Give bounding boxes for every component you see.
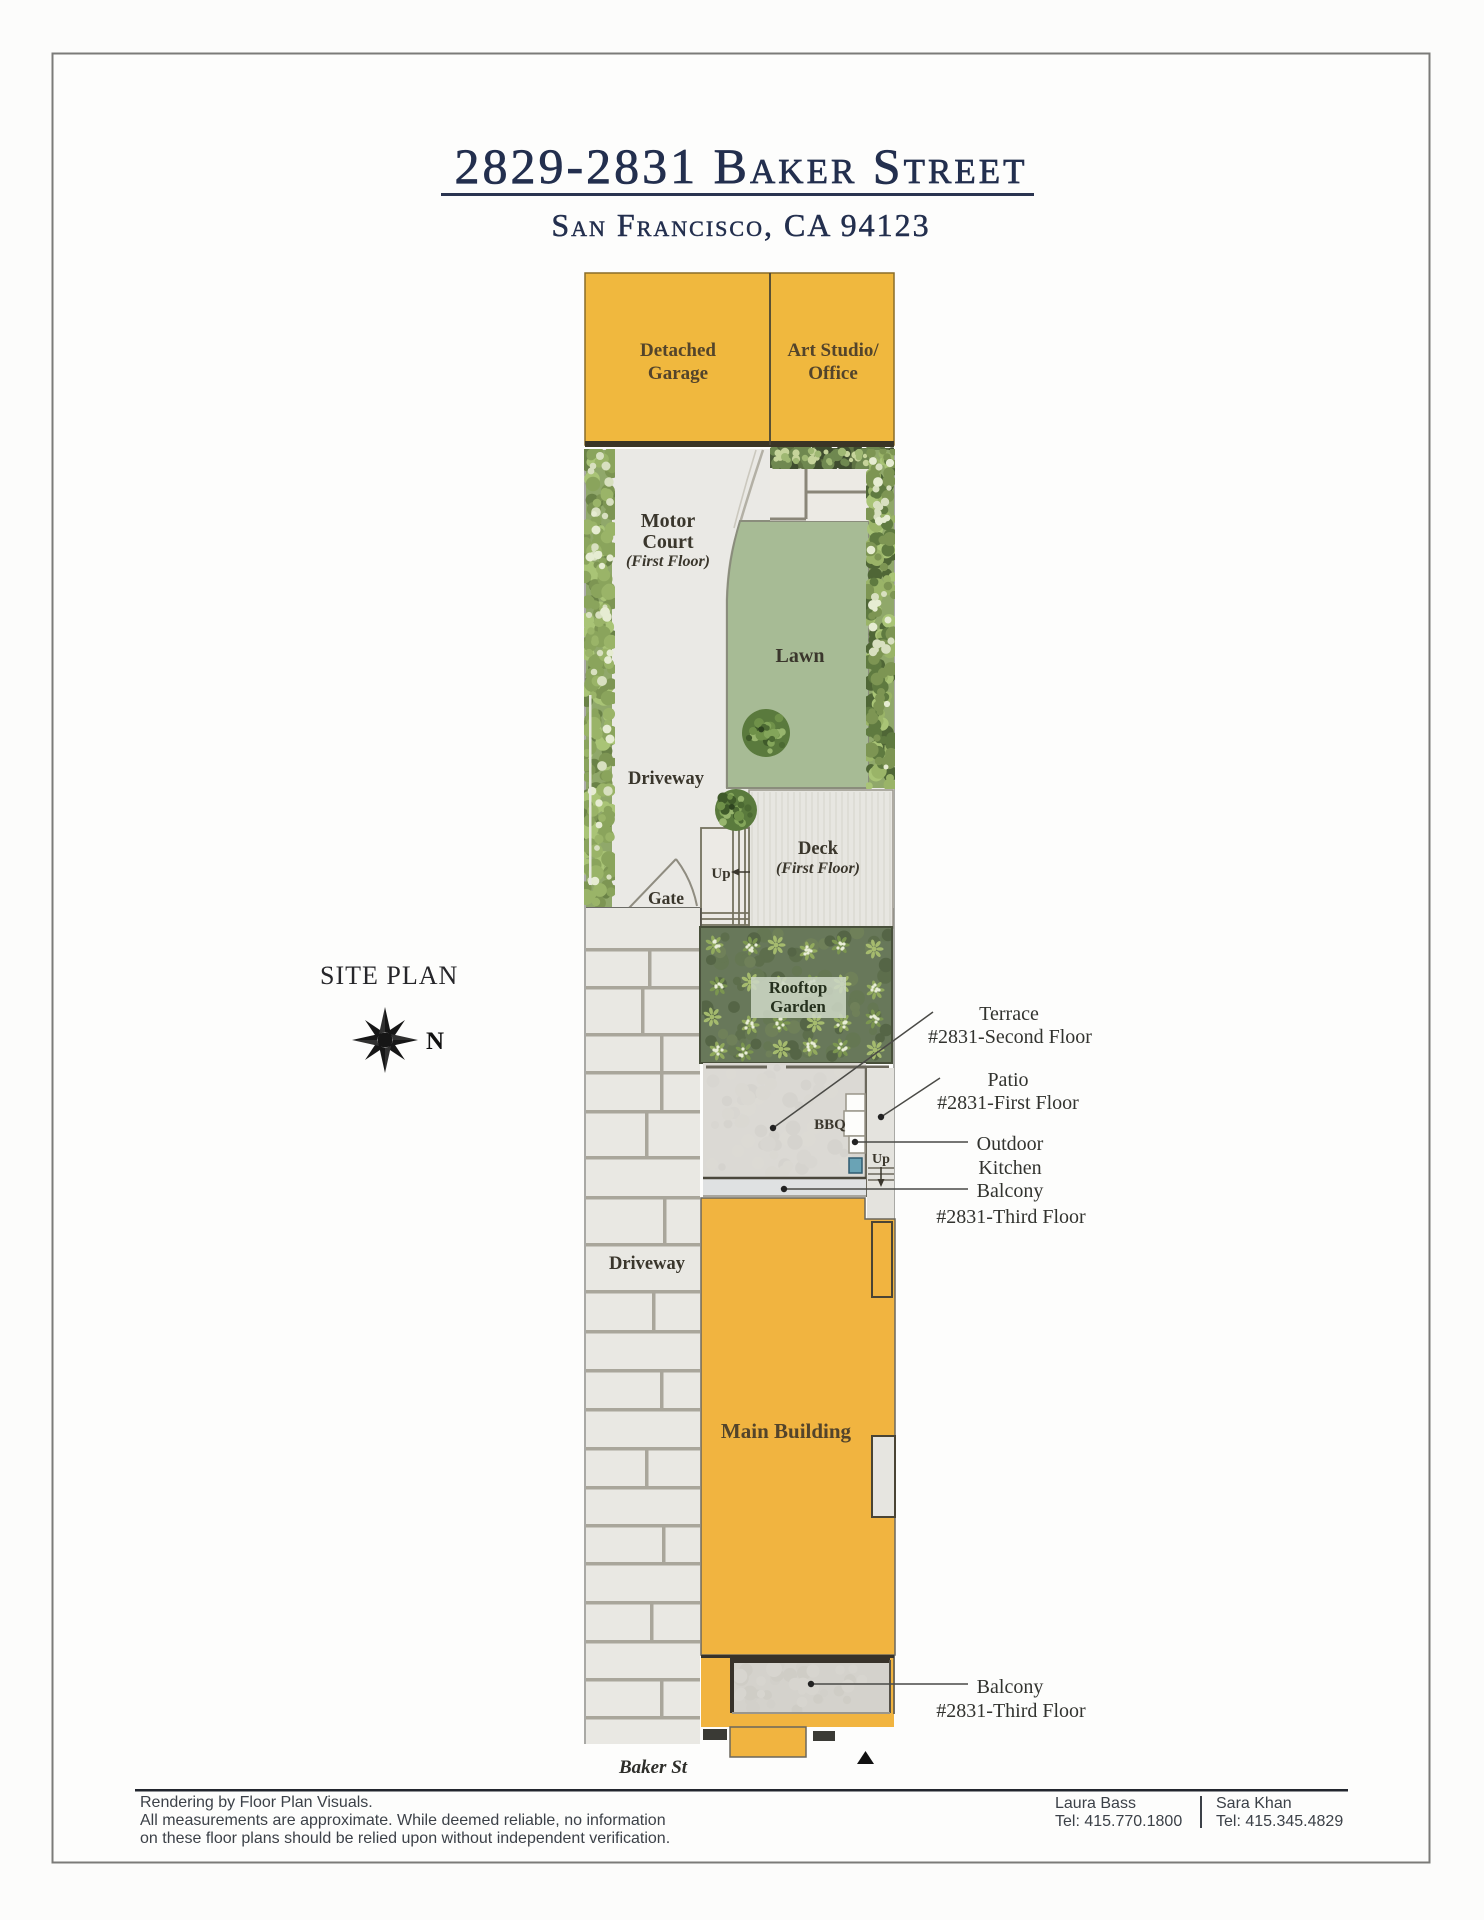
svg-text:Gate: Gate — [648, 888, 684, 908]
svg-text:N: N — [426, 1028, 444, 1055]
svg-text:Kitchen: Kitchen — [978, 1157, 1041, 1179]
svg-text:#2831-Third Floor: #2831-Third Floor — [936, 1206, 1086, 1228]
svg-text:Outdoor: Outdoor — [977, 1133, 1044, 1155]
svg-text:Driveway: Driveway — [609, 1254, 686, 1274]
svg-text:BBQ: BBQ — [814, 1117, 846, 1133]
svg-text:#2831-Second Floor: #2831-Second Floor — [928, 1026, 1092, 1048]
svg-text:Tel: 415.345.4829: Tel: 415.345.4829 — [1216, 1813, 1343, 1830]
svg-text:on these floor plans should be: on these floor plans should be relied up… — [140, 1830, 670, 1847]
svg-text:Garage: Garage — [648, 363, 708, 384]
svg-text:Balcony: Balcony — [977, 1180, 1044, 1202]
svg-text:Up: Up — [872, 1152, 890, 1167]
svg-text:Baker St: Baker St — [618, 1757, 688, 1778]
svg-text:San Francisco, CA 94123: San Francisco, CA 94123 — [551, 207, 930, 243]
svg-text:Rendering by Floor Plan Visual: Rendering by Floor Plan Visuals. — [140, 1794, 373, 1811]
svg-text:Laura Bass: Laura Bass — [1055, 1795, 1136, 1812]
svg-text:Lawn: Lawn — [776, 645, 825, 667]
svg-text:Deck: Deck — [798, 839, 839, 859]
svg-text:Patio: Patio — [987, 1069, 1028, 1091]
svg-text:Office: Office — [808, 363, 858, 384]
svg-text:(First Floor): (First Floor) — [626, 553, 710, 570]
svg-text:#2831-First Floor: #2831-First Floor — [937, 1092, 1079, 1114]
svg-text:Garden: Garden — [770, 997, 826, 1016]
svg-text:Court: Court — [642, 531, 693, 553]
svg-text:All measurements are approxima: All measurements are approximate. While … — [140, 1812, 666, 1829]
svg-text:Detached: Detached — [640, 340, 716, 361]
svg-text:Main Building: Main Building — [721, 1419, 852, 1443]
svg-text:Art Studio/: Art Studio/ — [787, 340, 879, 361]
svg-text:Terrace: Terrace — [979, 1003, 1039, 1025]
svg-text:SITE PLAN: SITE PLAN — [320, 961, 458, 990]
svg-text:Up: Up — [711, 866, 730, 882]
svg-text:(First Floor): (First Floor) — [776, 860, 860, 877]
svg-text:Motor: Motor — [641, 510, 696, 532]
svg-text:Sara Khan: Sara Khan — [1216, 1795, 1292, 1812]
svg-text:2829-2831 Baker Street: 2829-2831 Baker Street — [455, 138, 1028, 194]
svg-text:Rooftop: Rooftop — [769, 978, 828, 997]
svg-text:Balcony: Balcony — [977, 1676, 1044, 1698]
svg-text:Driveway: Driveway — [628, 769, 705, 789]
svg-text:Tel: 415.770.1800: Tel: 415.770.1800 — [1055, 1813, 1182, 1830]
svg-text:#2831-Third Floor: #2831-Third Floor — [936, 1700, 1086, 1722]
